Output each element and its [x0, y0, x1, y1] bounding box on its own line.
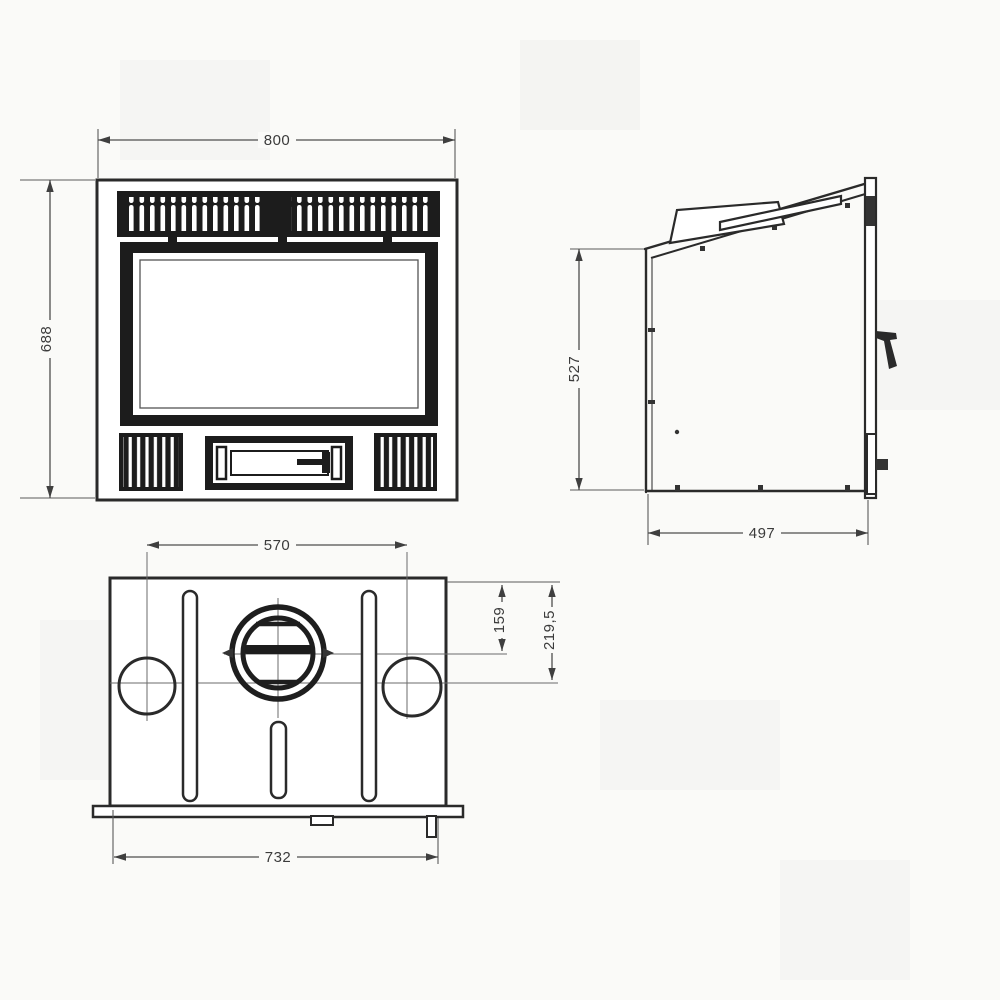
dimension-side-depth: 497: [648, 494, 868, 545]
dim-label-duct-offset: 219,5: [541, 610, 558, 650]
top-slot-left: [183, 591, 197, 801]
strip-tab: [311, 816, 333, 825]
dim-label-duct-spacing: 570: [264, 537, 291, 554]
door-glass: [133, 253, 425, 415]
dim-label-flue-offset: 159: [491, 607, 508, 634]
bottom-tab: [845, 485, 850, 491]
dim-label-side-depth: 497: [749, 525, 776, 542]
top-slot-center: [271, 722, 286, 798]
fastener-dot: [675, 430, 679, 434]
top-view: 570 159 219,5 732: [93, 537, 560, 866]
dimension-side-height: 527: [566, 249, 644, 490]
drawer-end-cap-right: [332, 447, 341, 479]
lower-vent-right-slats: [378, 437, 433, 487]
flue-damper-band: [245, 645, 311, 654]
back-edge-tab: [648, 328, 655, 332]
grille-slats-left: [126, 197, 263, 231]
latch-body: [867, 434, 876, 494]
technical-drawing-sheet: 800 688: [0, 0, 1000, 1000]
dim-label-overall-width: 732: [265, 849, 292, 866]
drawer-key-bar: [297, 459, 326, 465]
door-handle-side: [876, 331, 897, 369]
front-view: 800 688: [20, 129, 457, 500]
dimension-overall-width: 732: [113, 810, 438, 866]
top-slot-right: [362, 591, 376, 801]
dimension-front-width: 800: [98, 129, 455, 178]
drawer-key-head: [322, 452, 330, 473]
latch-knob: [876, 459, 888, 470]
slope-tab: [845, 203, 850, 208]
dimension-front-height: 688: [20, 180, 95, 498]
front-face-shading-top: [866, 196, 875, 226]
grille-slats-right: [291, 197, 433, 231]
dimension-duct-offset: 219,5: [541, 585, 558, 680]
lower-vent-left-slats: [123, 437, 179, 487]
slope-tab: [700, 246, 705, 251]
side-view: 527 497: [566, 178, 897, 545]
back-edge-tab: [648, 400, 655, 404]
door-hinge-tab: [168, 236, 177, 243]
drawer-end-cap-left: [217, 447, 226, 479]
bottom-tab: [675, 485, 680, 491]
dim-label-front-width: 800: [264, 132, 291, 149]
dim-label-front-height: 688: [38, 326, 55, 353]
dimension-duct-spacing: 570: [147, 537, 407, 554]
bottom-tab: [758, 485, 763, 491]
door-hinge-tab: [278, 236, 287, 243]
strip-hook: [427, 816, 436, 837]
door-hinge-tab: [383, 236, 392, 243]
front-plate-strip: [93, 806, 463, 817]
dim-label-side-height: 527: [566, 356, 583, 383]
fireplace-insert-drawing: 800 688: [0, 0, 1000, 1000]
door-handle: [426, 332, 437, 372]
